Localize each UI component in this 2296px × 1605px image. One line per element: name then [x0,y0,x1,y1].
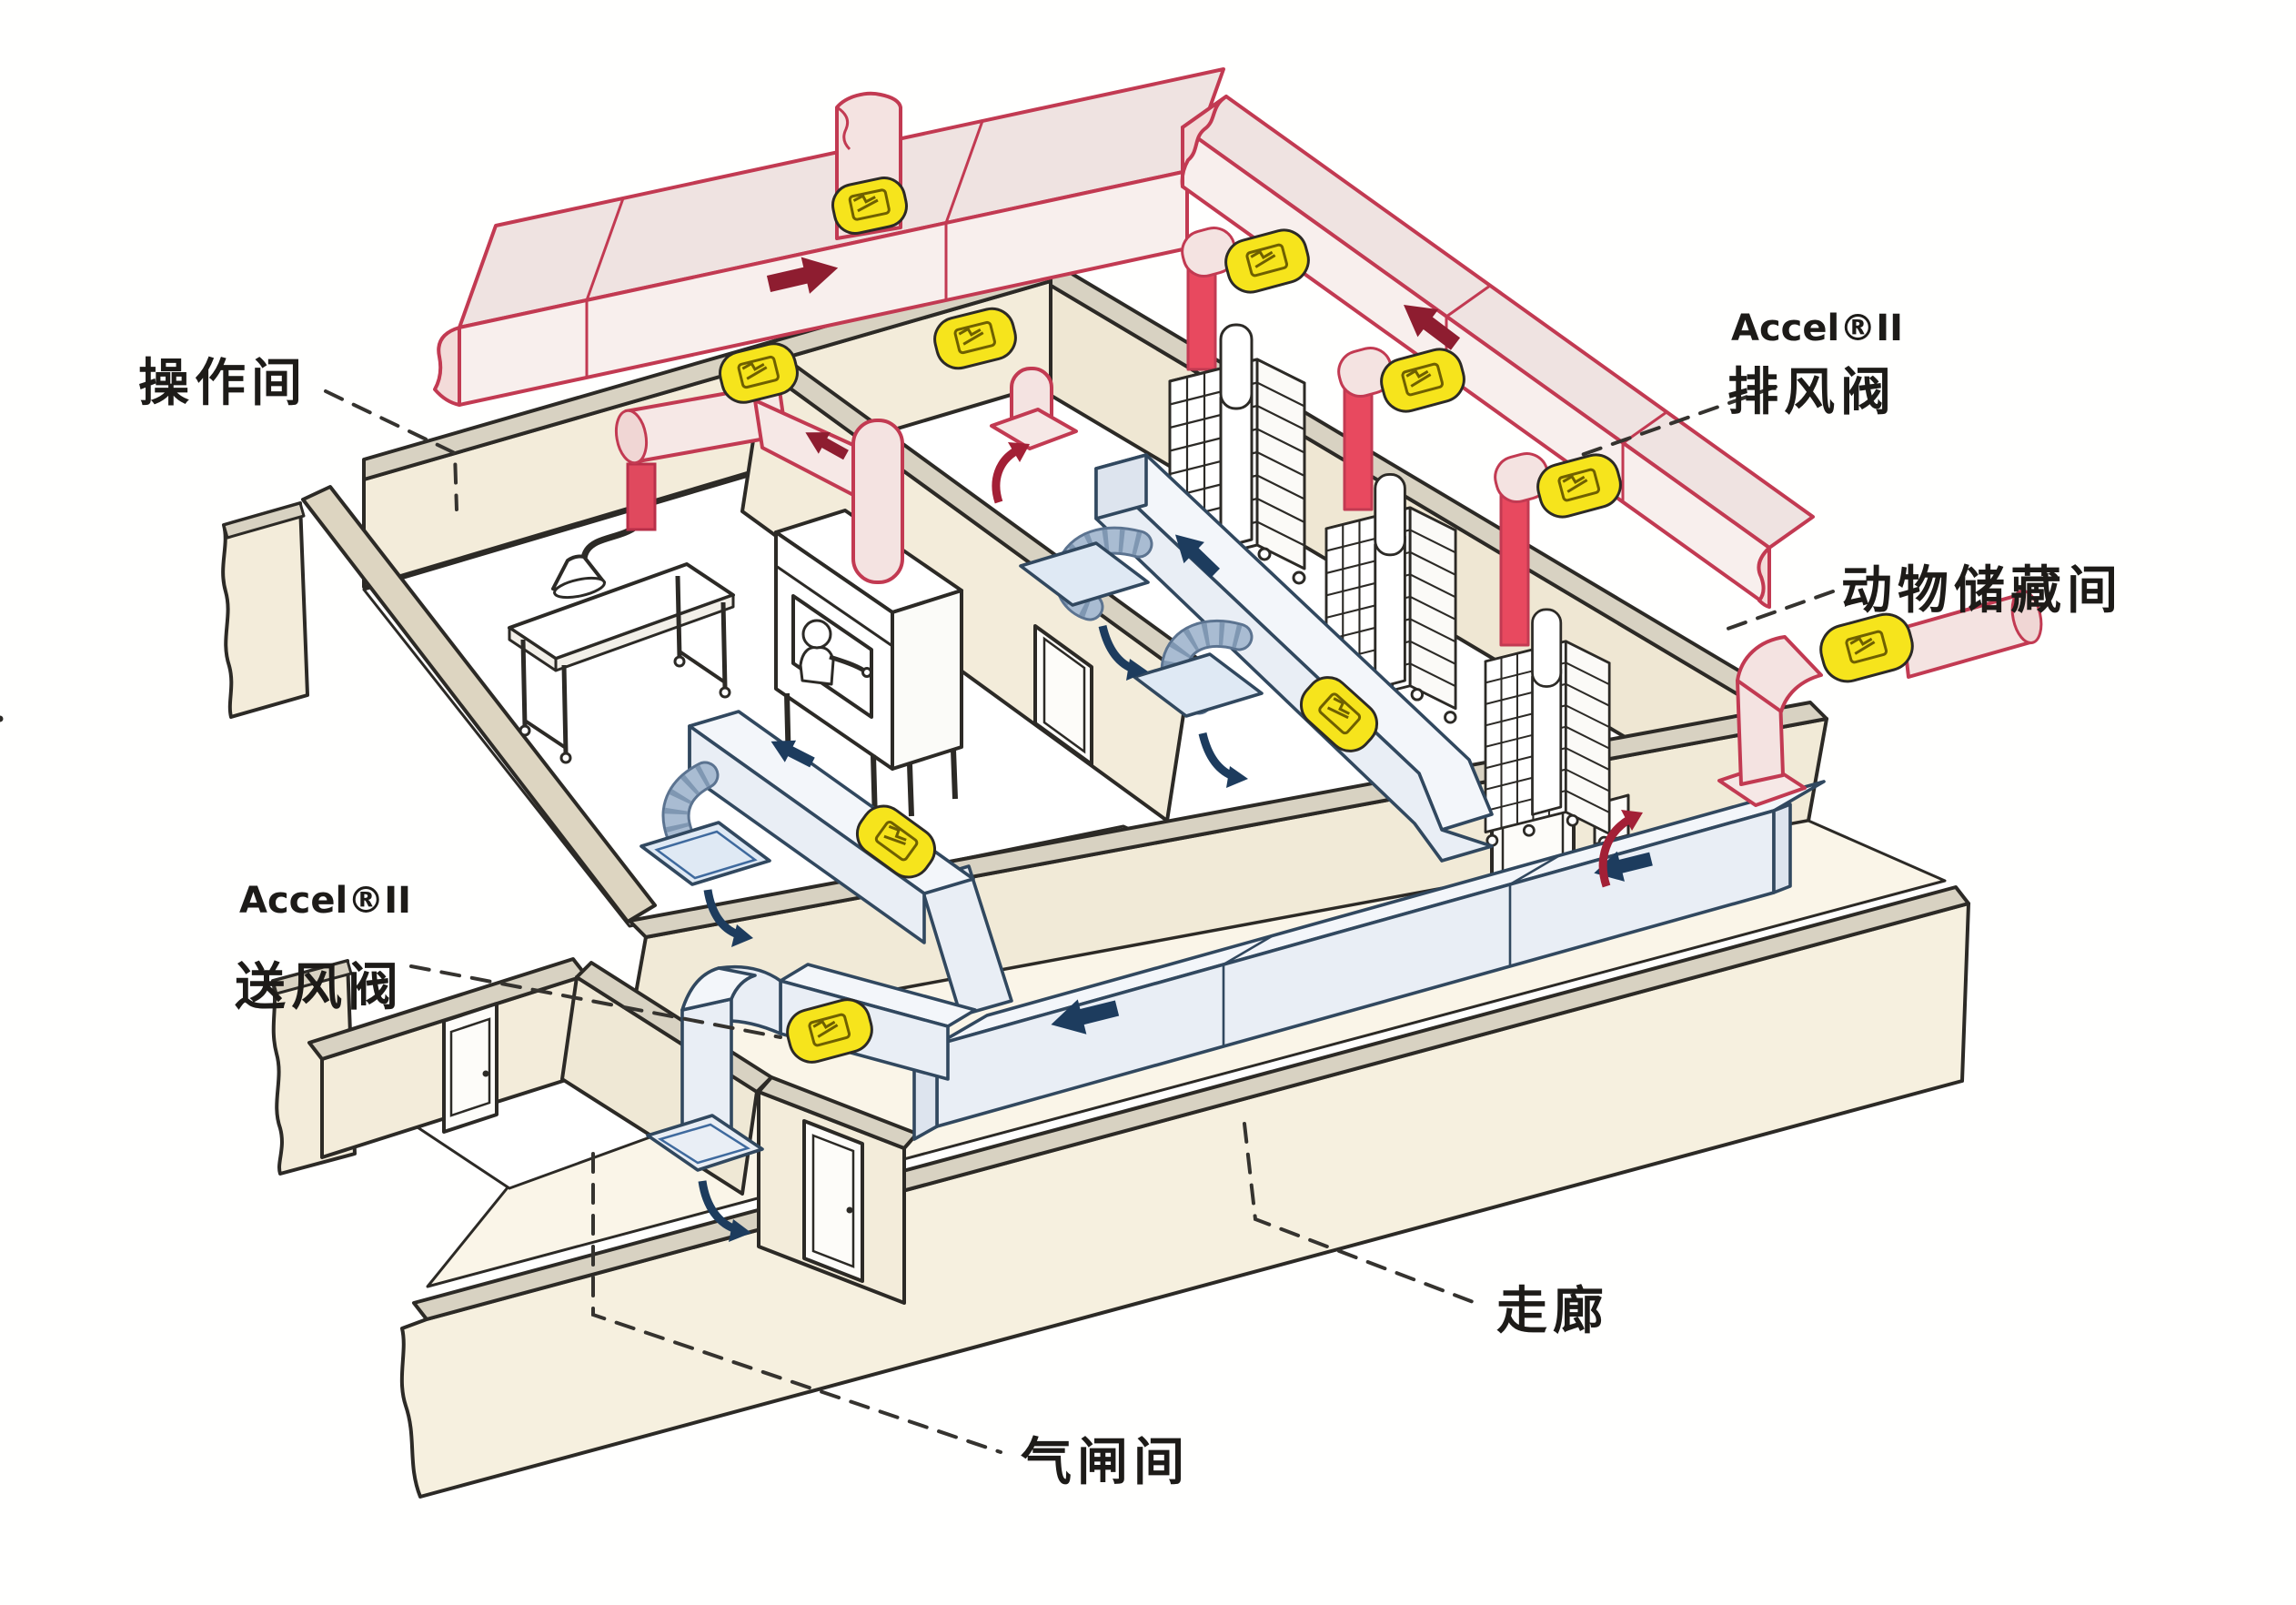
label-corridor: 走廊 [1496,1282,1609,1341]
hood-exhaust-riser [853,420,902,582]
label-airlock: 气闸间 [1021,1433,1190,1492]
label-operation-room: 操作间 [138,354,307,413]
label-exhaust-valve: 排风阀 [1727,363,1897,422]
facility-ventilation-diagram: 操作间 Accel®II 排风阀 动物储藏间 Accel®II 送风阀 走廊 气… [0,0,2296,1605]
label-supply-valve-brand: Accel®II [239,880,411,922]
exhaust-exit-stub [829,94,910,238]
snorkel-exhaust-drop [628,464,655,530]
airlock-door-right [804,1121,862,1281]
leader-animal-room [1717,591,1833,632]
label-animal-storage-room: 动物储藏间 [1841,561,2123,621]
label-supply-valve: 送风阀 [235,958,404,1017]
label-exhaust-valve-brand: Accel®II [1731,308,1903,349]
airlock-door-left [444,1004,497,1132]
